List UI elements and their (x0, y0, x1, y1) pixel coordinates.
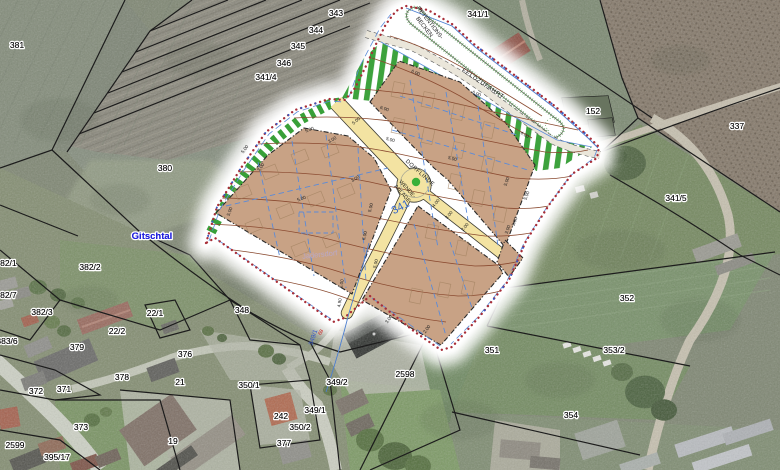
svg-text:353/2: 353/2 (603, 345, 625, 355)
svg-text:152: 152 (586, 106, 600, 116)
svg-text:349/1: 349/1 (304, 405, 326, 415)
svg-text:350/1: 350/1 (238, 380, 260, 390)
svg-text:395/17: 395/17 (44, 452, 70, 462)
svg-text:2598: 2598 (396, 369, 415, 379)
svg-text:349/2: 349/2 (326, 377, 348, 387)
svg-text:242: 242 (274, 411, 288, 421)
svg-text:345: 345 (291, 41, 305, 51)
svg-text:354: 354 (564, 410, 578, 420)
svg-text:2599: 2599 (6, 440, 25, 450)
svg-text:351: 351 (485, 345, 499, 355)
svg-text:337: 337 (730, 121, 744, 131)
svg-text:352: 352 (620, 293, 634, 303)
svg-text:341/1: 341/1 (467, 9, 489, 19)
svg-text:372: 372 (29, 386, 43, 396)
svg-text:350/2: 350/2 (289, 422, 311, 432)
svg-text:382/3: 382/3 (31, 307, 53, 317)
svg-text:379: 379 (70, 342, 84, 352)
svg-text:381: 381 (10, 40, 24, 50)
svg-text:341/4: 341/4 (255, 72, 277, 82)
svg-text:348: 348 (235, 305, 249, 315)
svg-text:21: 21 (175, 377, 185, 387)
svg-text:382/7: 382/7 (0, 290, 17, 300)
svg-text:383/6: 383/6 (0, 336, 18, 346)
svg-text:22/2: 22/2 (109, 326, 126, 336)
svg-text:371: 371 (57, 384, 71, 394)
svg-text:344: 344 (309, 25, 323, 35)
svg-text:376: 376 (178, 349, 192, 359)
svg-text:22/1: 22/1 (147, 308, 164, 318)
svg-text:343: 343 (329, 8, 343, 18)
svg-text:382/2: 382/2 (79, 262, 101, 272)
svg-text:341/5: 341/5 (665, 193, 687, 203)
svg-text:19: 19 (168, 436, 178, 446)
svg-text:377: 377 (277, 438, 291, 448)
svg-text:378: 378 (115, 372, 129, 382)
svg-text:382/1: 382/1 (0, 258, 17, 268)
svg-text:373: 373 (74, 422, 88, 432)
svg-text:346: 346 (277, 58, 291, 68)
svg-text:380: 380 (158, 163, 172, 173)
svg-text:Gitschtal: Gitschtal (132, 231, 173, 242)
